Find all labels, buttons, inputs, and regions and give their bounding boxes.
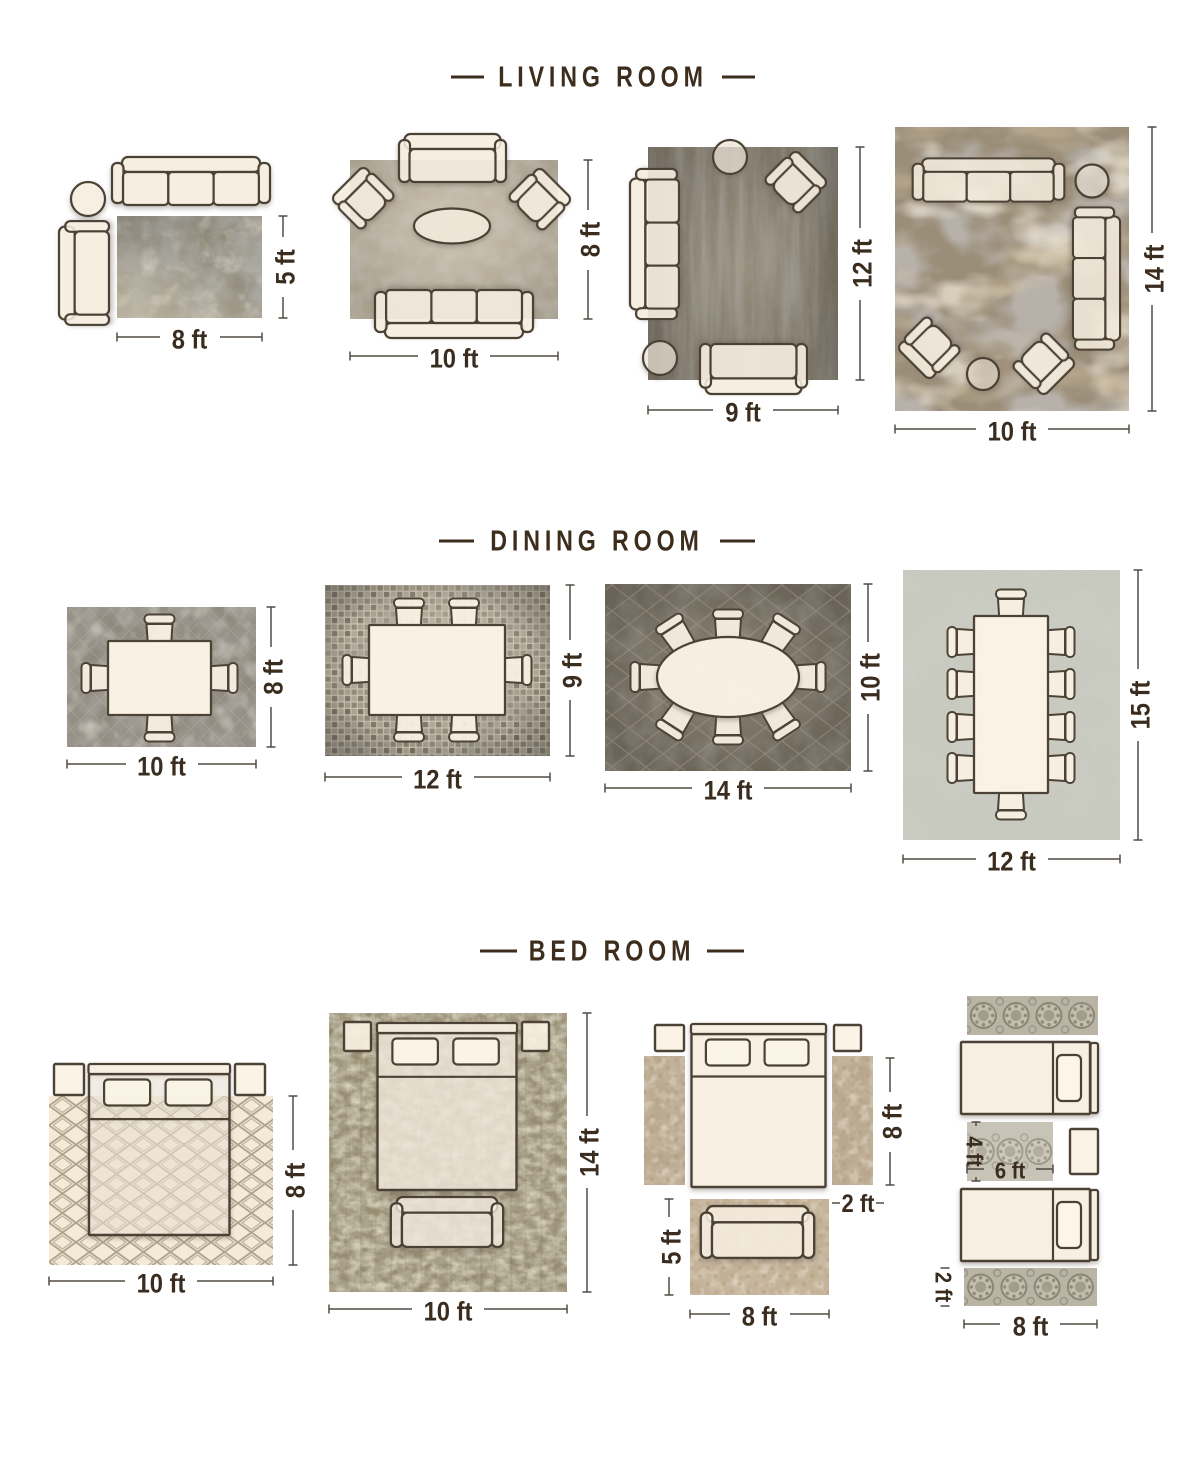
svg-text:DINING ROOM: DINING ROOM xyxy=(490,524,703,557)
svg-text:9 ft: 9 ft xyxy=(725,398,761,428)
svg-text:12 ft: 12 ft xyxy=(413,765,462,795)
svg-text:5 ft: 5 ft xyxy=(657,1229,687,1265)
svg-text:5 ft: 5 ft xyxy=(271,249,301,285)
svg-text:8 ft: 8 ft xyxy=(172,325,208,355)
svg-text:12 ft: 12 ft xyxy=(848,239,878,288)
svg-text:10 ft: 10 ft xyxy=(856,653,886,702)
svg-text:8 ft: 8 ft xyxy=(576,221,606,257)
svg-text:8 ft: 8 ft xyxy=(1013,1312,1049,1342)
svg-text:2 ft: 2 ft xyxy=(930,1272,957,1302)
svg-text:10 ft: 10 ft xyxy=(988,417,1037,447)
svg-text:8 ft: 8 ft xyxy=(878,1103,908,1139)
svg-text:LIVING ROOM: LIVING ROOM xyxy=(498,60,708,93)
svg-text:15 ft: 15 ft xyxy=(1126,680,1156,729)
svg-text:8 ft: 8 ft xyxy=(259,659,289,695)
svg-text:12 ft: 12 ft xyxy=(987,847,1036,877)
svg-text:8 ft: 8 ft xyxy=(281,1162,311,1198)
svg-text:4 ft: 4 ft xyxy=(961,1136,988,1166)
svg-text:8 ft: 8 ft xyxy=(742,1302,778,1332)
svg-text:14 ft: 14 ft xyxy=(704,776,753,806)
svg-text:9 ft: 9 ft xyxy=(558,652,588,688)
svg-text:10 ft: 10 ft xyxy=(137,752,186,782)
svg-text:BED ROOM: BED ROOM xyxy=(529,934,696,967)
svg-text:2 ft: 2 ft xyxy=(842,1190,875,1218)
svg-text:10 ft: 10 ft xyxy=(424,1297,473,1327)
svg-text:10 ft: 10 ft xyxy=(430,344,479,374)
svg-text:14 ft: 14 ft xyxy=(575,1128,605,1177)
svg-text:10 ft: 10 ft xyxy=(137,1269,186,1299)
svg-text:14 ft: 14 ft xyxy=(1140,244,1170,293)
svg-text:6 ft: 6 ft xyxy=(995,1157,1025,1184)
